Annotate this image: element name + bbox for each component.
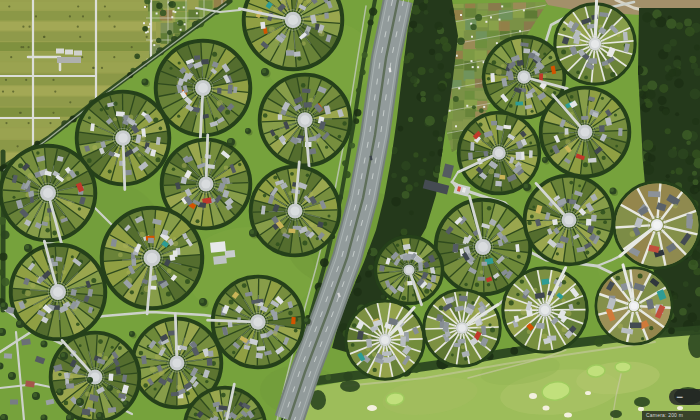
garden-circle bbox=[11, 241, 105, 339]
zoom-controls: − + bbox=[669, 389, 700, 405]
aerial-imagery bbox=[0, 0, 700, 420]
garden-circle bbox=[458, 113, 539, 193]
garden-circle bbox=[541, 88, 629, 176]
zoom-out-button[interactable]: − bbox=[676, 390, 683, 404]
garden-circle bbox=[503, 268, 587, 352]
satellite-map[interactable]: − + Camera: 200 m bbox=[0, 0, 700, 420]
garden-circle bbox=[1, 146, 95, 244]
garden-circle bbox=[376, 237, 442, 305]
garden-circle bbox=[424, 290, 500, 366]
garden-circle bbox=[614, 182, 700, 268]
map-attribution: Camera: 200 m bbox=[642, 411, 700, 420]
garden-circle bbox=[346, 301, 424, 379]
garden-circle bbox=[525, 176, 613, 264]
